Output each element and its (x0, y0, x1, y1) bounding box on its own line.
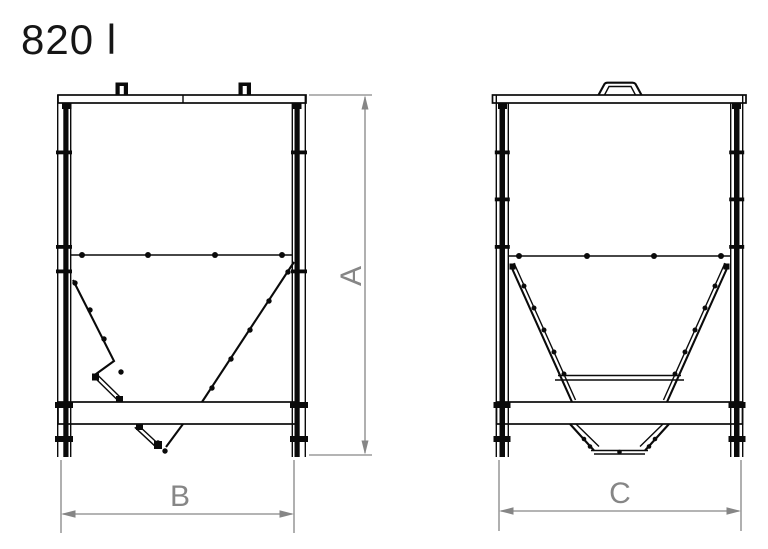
front-lifting-lug-right (239, 83, 252, 96)
side-left-leg (494, 95, 511, 457)
side-cross-beam (497, 402, 743, 424)
front-left-leg (55, 95, 73, 457)
dimension-a-label: A (335, 266, 368, 286)
front-lifting-lug-left (116, 83, 129, 96)
side-right-leg (729, 95, 746, 457)
front-outlet-chute (135, 424, 183, 454)
arrow-right-icon (280, 510, 295, 517)
front-top-bar (58, 95, 306, 103)
dimension-c: C (499, 460, 741, 531)
dimension-b-label: B (170, 480, 190, 513)
front-cross-beam (58, 402, 296, 424)
arrow-left-icon (499, 507, 514, 514)
side-seam-line (509, 253, 730, 259)
side-funnel (510, 263, 730, 402)
side-view (493, 83, 747, 457)
technical-drawing-canvas: A B C (0, 0, 768, 549)
front-hopper (72, 262, 294, 402)
front-right-leg (290, 95, 308, 457)
front-seam-line (71, 252, 292, 258)
front-view (55, 83, 308, 458)
side-outlet-chute (570, 424, 669, 454)
side-top-bar (493, 95, 747, 103)
dimension-c-label: C (609, 477, 631, 510)
arrow-down-icon (362, 441, 369, 455)
arrow-left-icon (61, 510, 76, 517)
side-handle-lug (599, 83, 642, 95)
dimension-a: A (309, 95, 372, 455)
drawing-page: 820 l (0, 0, 768, 549)
dimension-b: B (61, 460, 294, 533)
arrow-right-icon (727, 507, 742, 514)
arrow-up-icon (362, 96, 369, 110)
